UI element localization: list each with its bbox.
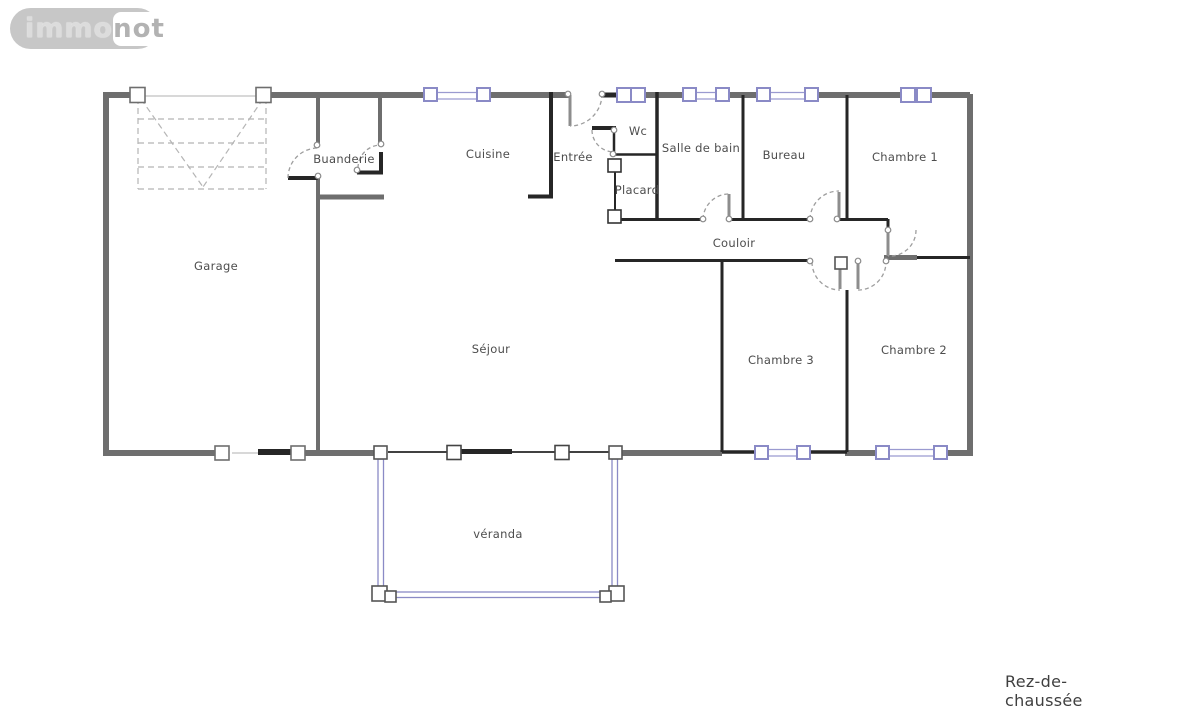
interior-gray-walls (316, 92, 917, 452)
door-jamb-dots (314, 91, 891, 264)
room-label-chambre-2: Chambre 2 (881, 343, 947, 357)
room-label-cuisine: Cuisine (466, 147, 510, 161)
floor-title: Rez-de-chaussée (1005, 672, 1135, 710)
room-label-placard: Placard (615, 183, 659, 197)
room-label-salle-de-bain: Salle de bain (662, 141, 740, 155)
room-label-chambre-3: Chambre 3 (748, 353, 814, 367)
door-thresholds (145, 96, 258, 453)
garage-door-dashes (138, 98, 266, 189)
veranda-posts (372, 446, 624, 602)
door-swing-arcs (288, 94, 916, 290)
floorplan-drawing (0, 0, 1200, 715)
room-label-chambre-1: Chambre 1 (872, 150, 938, 164)
room-label-entree: Entrée (553, 150, 593, 164)
partition-walls (258, 92, 970, 452)
room-label-couloir: Couloir (713, 236, 756, 250)
room-label-bureau: Bureau (763, 148, 806, 162)
room-label-sejour: Séjour (472, 342, 510, 356)
room-label-veranda: véranda (473, 527, 522, 541)
room-label-wc: Wc (629, 124, 647, 138)
room-label-garage: Garage (194, 259, 238, 273)
room-label-buanderie: Buanderie (313, 152, 375, 166)
